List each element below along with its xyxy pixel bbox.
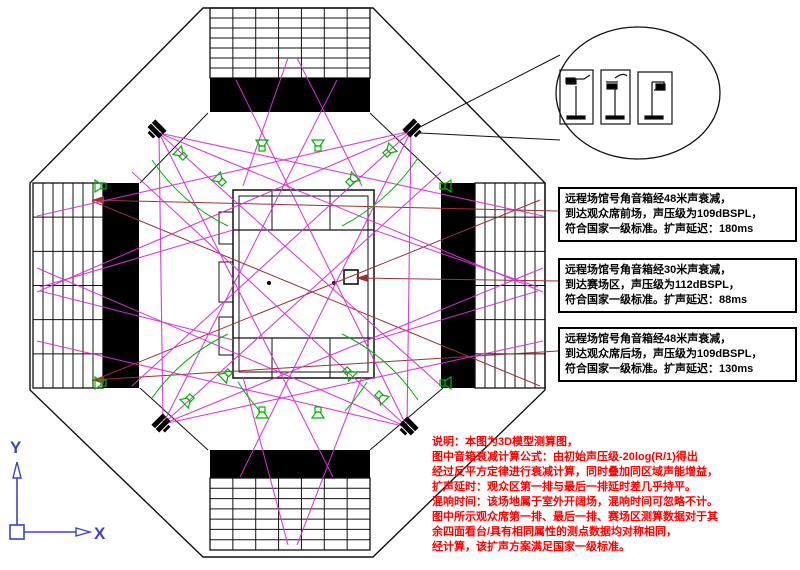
speaker-cluster-icon (145, 119, 167, 141)
detail-callout-circle (420, 27, 720, 159)
annotation-box-rear-rows: 远程场馆号角音箱经48米声衰减， 到达观众席后场，声压级为109dBSPL， 符… (558, 327, 797, 382)
inner-corner-diagonals (140, 113, 443, 450)
center-point-left (267, 281, 271, 285)
annotation-line: 符合国家一级标准。扩声延迟：180ms (565, 222, 790, 237)
stand-bottom (210, 450, 370, 550)
note-line: 扩声延时：观众区第一排与最后一排延时差几乎持平。 (432, 480, 718, 495)
speaker-cluster-icon (397, 416, 419, 438)
mounting-detail-panels (560, 70, 672, 124)
annotation-line: 符合国家一级标准。扩声延迟：88ms (565, 293, 790, 308)
cad-drawing-canvas: Y X 远程场馆号角音箱经48米声衰减， 到达观众席前场，声压级为109dBSP… (0, 0, 800, 570)
annotation-line: 远程场馆号角音箱经48米声衰减， (565, 332, 790, 347)
speaker-cluster-icon (151, 413, 173, 435)
annotation-box-front-rows: 远程场馆号角音箱经48米声衰减， 到达观众席前场，声压级为109dBSPL， 符… (558, 187, 797, 242)
court (219, 190, 374, 378)
note-line: 经过反平方定律进行衰减计算，同时叠加同区域声能增益， (432, 465, 718, 480)
annotation-line: 到达观众席前场，声压级为109dBSPL， (565, 207, 790, 222)
note-line: 余四面看台/具有相同属性的测点数据均对称相同， (432, 525, 718, 540)
annotation-line: 远程场馆号角音箱经48米声衰减， (565, 192, 790, 207)
ucs-axis-icon (10, 462, 90, 539)
speaker-cluster-icon (402, 118, 424, 140)
x-axis-label: X (94, 524, 105, 544)
annotation-line: 远程场馆号角音箱经30米声衰减， (565, 263, 790, 278)
arena-measure-point-marker (344, 270, 358, 284)
note-line: 混响时间：该场地属于室外开阔场，混响时间可忽略不计。 (432, 495, 718, 510)
annotation-line: 到达观众席后场，声压级为109dBSPL， (565, 347, 790, 362)
note-line: 图中所示观众席第一排、最后一排、赛场区测算数据对于其 (432, 510, 718, 525)
stand-top (210, 8, 370, 112)
annotation-line: 符合国家一级标准。扩声延迟：130ms (565, 362, 790, 377)
note-line: 图中音箱衰减计算公式：由初始声压级-20log(R/1)得出 (432, 450, 718, 465)
notes-block: 说明：本图为3D模型测算图， 图中音箱衰减计算公式：由初始声压级-20log(R… (432, 435, 718, 555)
annotation-line: 到达赛场区，声压级为112dBSPL， (565, 278, 790, 293)
annotation-box-arena: 远程场馆号角音箱经30米声衰减， 到达赛场区，声压级为112dBSPL， 符合国… (558, 258, 797, 313)
note-line: 说明：本图为3D模型测算图， (432, 435, 718, 450)
note-line: 经计算，该扩声方案满足国家一级标准。 (432, 540, 718, 555)
y-axis-label: Y (10, 438, 21, 458)
